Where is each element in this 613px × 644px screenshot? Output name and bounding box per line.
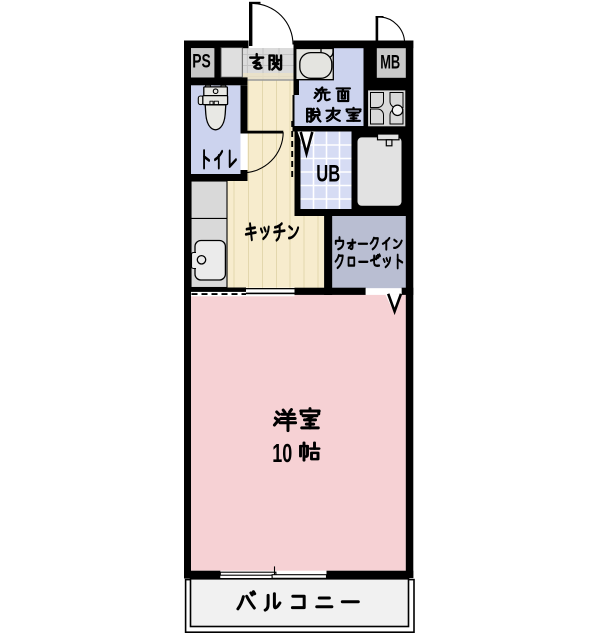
svg-text:10: 10 — [272, 438, 292, 468]
svg-text:UB: UB — [316, 161, 340, 188]
svg-text:MB: MB — [380, 51, 400, 73]
svg-text:PS: PS — [192, 51, 211, 73]
